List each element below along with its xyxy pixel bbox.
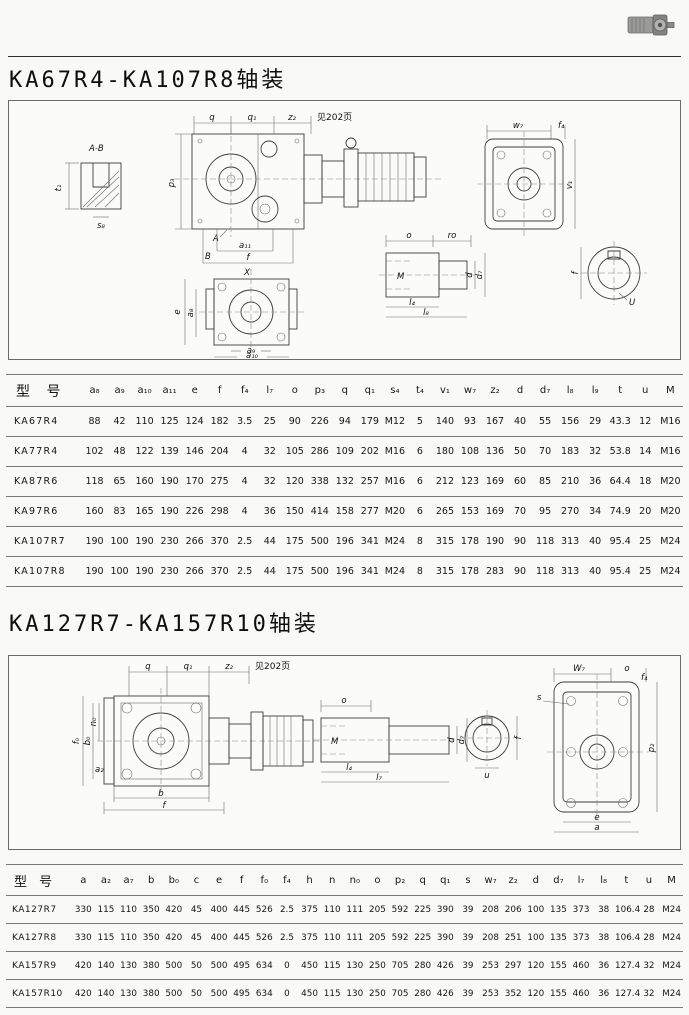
value-cell: 32	[257, 437, 282, 467]
table2: 型 号aa₂a₇bb₀ceff₀f₄hnn₀op₂qq₁sw₇z₂dd₇l₇l₈…	[6, 864, 683, 1008]
value-cell: 277	[357, 497, 382, 527]
value-cell: 178	[457, 557, 482, 587]
value-cell: 94	[332, 407, 357, 437]
dim-e-label: e	[173, 309, 183, 314]
section2-title: KA127R7-KA157R10轴装	[9, 606, 319, 638]
dim-p2-label: p₂	[647, 743, 657, 753]
value-cell: 130	[344, 952, 367, 980]
dim-o2-label: o	[624, 664, 629, 674]
value-cell: M20	[658, 467, 683, 497]
value-cell: 8	[407, 557, 432, 587]
value-cell: 500	[307, 527, 332, 557]
value-cell: 167	[483, 407, 508, 437]
value-cell: 36	[592, 952, 615, 980]
flange-view: W₇ o s f₄ p₂ e a	[537, 664, 657, 833]
column-header: l₇	[257, 375, 282, 407]
value-cell: 0	[276, 980, 299, 1008]
table-row: KA107R81901001902302663702.5441755001963…	[6, 557, 683, 587]
value-cell: 266	[182, 557, 207, 587]
value-cell: 212	[432, 467, 457, 497]
table-row: KA67R488421101251241823.5259022694179M12…	[6, 407, 683, 437]
front-view: X e a₈ a₉ a₁₀	[173, 268, 305, 359]
value-cell: 74.9	[608, 497, 633, 527]
value-cell: 380	[140, 952, 163, 980]
dim-t1-label: t₁	[54, 185, 64, 192]
value-cell: 230	[157, 527, 182, 557]
value-cell: 445	[230, 896, 253, 924]
dim-u-label: U	[629, 298, 636, 308]
value-cell: 6	[407, 437, 432, 467]
value-cell: 153	[457, 497, 482, 527]
column-header: f	[207, 375, 232, 407]
value-cell: 120	[282, 467, 307, 497]
value-cell: 196	[332, 527, 357, 557]
column-header: p₂	[389, 865, 412, 896]
value-cell: 130	[344, 980, 367, 1008]
value-cell: 100	[107, 557, 132, 587]
value-cell: 100	[525, 924, 548, 952]
value-cell: 120	[525, 952, 548, 980]
value-cell: 206	[502, 896, 525, 924]
value-cell: 375	[298, 924, 321, 952]
value-cell: 190	[157, 497, 182, 527]
value-cell: 110	[117, 896, 140, 924]
value-cell: 266	[182, 527, 207, 557]
dim-q-label: q	[209, 113, 215, 123]
column-header: d	[525, 865, 548, 896]
value-cell: 12	[633, 407, 658, 437]
value-cell: 42	[107, 407, 132, 437]
value-cell: 40	[583, 527, 608, 557]
value-cell: 226	[307, 407, 332, 437]
dim-f-circle-label: f	[571, 270, 581, 275]
value-cell: 400	[208, 924, 231, 952]
column-header: l₈	[592, 865, 615, 896]
value-cell: 460	[570, 980, 593, 1008]
dim-a-label: a	[594, 823, 599, 833]
value-cell: 4	[232, 467, 257, 497]
value-cell: 50	[185, 952, 208, 980]
column-header: b	[140, 865, 163, 896]
column-header: t₄	[407, 375, 432, 407]
value-cell: 230	[157, 557, 182, 587]
value-cell: 178	[457, 527, 482, 557]
dim-l4-label: l₄	[409, 298, 415, 308]
value-cell: 150	[282, 497, 307, 527]
model-cell: KA107R8	[6, 557, 82, 587]
value-cell: 139	[157, 437, 182, 467]
value-cell: 48	[107, 437, 132, 467]
value-cell: 286	[307, 437, 332, 467]
column-header: o	[282, 375, 307, 407]
section-view-ab: A-B t₁ s₈	[54, 144, 121, 231]
value-cell: 118	[82, 467, 107, 497]
model-cell: KA97R6	[6, 497, 82, 527]
value-cell: 250	[366, 952, 389, 980]
value-cell: M24	[382, 527, 407, 557]
value-cell: 705	[389, 980, 412, 1008]
value-cell: 450	[298, 952, 321, 980]
dim-l7-label: l₇	[376, 773, 382, 783]
dim-q1-label: q₁	[184, 662, 193, 672]
column-header: l₉	[583, 375, 608, 407]
dim-d-label: d	[465, 272, 475, 278]
value-cell: 253	[479, 952, 502, 980]
column-header: o	[366, 865, 389, 896]
value-cell: 111	[344, 896, 367, 924]
value-cell: 315	[432, 557, 457, 587]
value-cell: 83	[107, 497, 132, 527]
value-cell: 298	[207, 497, 232, 527]
value-cell: 380	[140, 980, 163, 1008]
dim-p3-label: p₃	[167, 178, 177, 188]
dimension-table-2: 型 号aa₂a₇bb₀ceff₀f₄hnn₀op₂qq₁sw₇z₂dd₇l₇l₈…	[6, 864, 683, 1008]
value-cell: 36	[592, 980, 615, 1008]
value-cell: 330	[72, 896, 95, 924]
table-header-row: 型 号aa₂a₇bb₀ceff₀f₄hnn₀op₂qq₁sw₇z₂dd₇l₇l₈…	[6, 865, 683, 896]
value-cell: 205	[366, 896, 389, 924]
dim-z2-label: z₂	[224, 662, 233, 672]
value-cell: 592	[389, 896, 412, 924]
value-cell: 634	[253, 980, 276, 1008]
value-cell: M16	[658, 437, 683, 467]
dim-o-label: o	[341, 696, 346, 706]
model-cell: KA157R10	[6, 980, 72, 1008]
value-cell: 297	[502, 952, 525, 980]
value-cell: 500	[208, 952, 231, 980]
dim-f4-label: f₄	[641, 673, 648, 683]
dim-a11-label: a₁₁	[239, 241, 251, 251]
value-cell: 155	[547, 980, 570, 1008]
value-cell: 526	[253, 896, 276, 924]
value-cell: 146	[182, 437, 207, 467]
column-header: a₂	[95, 865, 118, 896]
value-cell: 280	[411, 980, 434, 1008]
value-cell: 140	[95, 980, 118, 1008]
value-cell: 190	[82, 527, 107, 557]
dim-f-label: f	[163, 801, 168, 811]
table-row: KA77R410248122139146204432105286109202M1…	[6, 437, 683, 467]
value-cell: 0	[276, 952, 299, 980]
value-cell: 106.4	[615, 924, 638, 952]
column-header: q₁	[434, 865, 457, 896]
column-header: d₇	[533, 375, 558, 407]
value-cell: 100	[107, 527, 132, 557]
value-cell: 6	[407, 497, 432, 527]
value-cell: 158	[332, 497, 357, 527]
value-cell: M20	[382, 497, 407, 527]
column-header: p₃	[307, 375, 332, 407]
value-cell: 2.5	[276, 924, 299, 952]
dim-f-circle-label: f	[514, 735, 524, 740]
value-cell: 110	[321, 896, 344, 924]
dim-q1-label: q₁	[248, 113, 257, 123]
column-header: l₈	[558, 375, 583, 407]
value-cell: 450	[298, 980, 321, 1008]
column-header: w₇	[479, 865, 502, 896]
value-cell: 420	[163, 896, 186, 924]
value-cell: 2.5	[276, 896, 299, 924]
value-cell: 118	[533, 557, 558, 587]
column-header: n₀	[344, 865, 367, 896]
value-cell: 190	[82, 557, 107, 587]
value-cell: 350	[140, 924, 163, 952]
column-header: q₁	[357, 375, 382, 407]
value-cell: 28	[638, 896, 661, 924]
gearmotor-photo-icon	[625, 7, 677, 41]
value-cell: 373	[570, 924, 593, 952]
value-cell: 275	[207, 467, 232, 497]
value-cell: 338	[307, 467, 332, 497]
value-cell: 205	[366, 924, 389, 952]
value-cell: 95.4	[608, 527, 633, 557]
value-cell: 95.4	[608, 557, 633, 587]
model-cell: KA77R4	[6, 437, 82, 467]
model-cell: KA127R7	[6, 896, 72, 924]
value-cell: 140	[432, 407, 457, 437]
value-cell: 43.3	[608, 407, 633, 437]
value-cell: 25	[257, 407, 282, 437]
column-header: M	[660, 865, 683, 896]
value-cell: 50	[508, 437, 533, 467]
model-cell: KA87R6	[6, 467, 82, 497]
value-cell: 2.5	[232, 557, 257, 587]
value-cell: 226	[182, 497, 207, 527]
section1-title: KA67R4-KA107R8轴装	[9, 62, 286, 94]
value-cell: 352	[502, 980, 525, 1008]
column-header: d	[508, 375, 533, 407]
value-cell: 111	[344, 924, 367, 952]
value-cell: 110	[117, 924, 140, 952]
value-cell: 115	[95, 896, 118, 924]
value-cell: 196	[332, 557, 357, 587]
value-cell: 165	[132, 497, 157, 527]
axis-x-label: X	[243, 268, 250, 278]
value-cell: 44	[257, 557, 282, 587]
value-cell: 105	[282, 437, 307, 467]
value-cell: 283	[483, 557, 508, 587]
value-cell: 250	[366, 980, 389, 1008]
dim-q-label: q	[145, 662, 151, 672]
value-cell: 123	[457, 467, 482, 497]
column-header: t	[608, 375, 633, 407]
column-header: u	[633, 375, 658, 407]
column-header: q	[332, 375, 357, 407]
value-cell: 32	[638, 952, 661, 980]
value-cell: 4	[232, 497, 257, 527]
value-cell: 64.4	[608, 467, 633, 497]
value-cell: 420	[72, 952, 95, 980]
value-cell: 8	[407, 527, 432, 557]
dim-e-label: e	[594, 813, 599, 823]
value-cell: 40	[508, 407, 533, 437]
dim-w7-label: w₇	[513, 121, 524, 131]
value-cell: 156	[558, 407, 583, 437]
dim-u-label: u	[484, 771, 489, 781]
value-cell: 109	[332, 437, 357, 467]
value-cell: 45	[185, 896, 208, 924]
value-cell: 100	[525, 896, 548, 924]
value-cell: 32	[638, 980, 661, 1008]
value-cell: 313	[558, 527, 583, 557]
value-cell: 125	[157, 407, 182, 437]
value-cell: 390	[434, 896, 457, 924]
value-cell: 190	[157, 467, 182, 497]
value-cell: 25	[633, 557, 658, 587]
table-row: KA107R71901001902302663702.5441755001963…	[6, 527, 683, 557]
side-view: q q₁ z₂ 见202页 p₃ A B	[167, 112, 441, 263]
value-cell: 70	[508, 497, 533, 527]
value-cell: 136	[483, 437, 508, 467]
model-cell: KA127R8	[6, 924, 72, 952]
value-cell: 169	[483, 467, 508, 497]
column-header: M	[658, 375, 683, 407]
value-cell: M24	[660, 924, 683, 952]
value-cell: 70	[533, 437, 558, 467]
dim-l4-label: l₄	[346, 763, 352, 773]
value-cell: 526	[253, 924, 276, 952]
value-cell: 390	[434, 924, 457, 952]
value-cell: 500	[163, 980, 186, 1008]
value-cell: M24	[660, 896, 683, 924]
value-cell: 4	[232, 437, 257, 467]
dim-v1-label: v₁	[565, 181, 575, 189]
value-cell: 53.8	[608, 437, 633, 467]
dim-d-label: d	[447, 737, 457, 743]
column-header: s₄	[382, 375, 407, 407]
figure1-drawing: A-B t₁ s₈ q q₁ z₂ 见202页 p₃	[9, 101, 680, 359]
column-header: b₀	[163, 865, 186, 896]
value-cell: 65	[107, 467, 132, 497]
value-cell: 160	[82, 497, 107, 527]
value-cell: 39	[457, 980, 480, 1008]
value-cell: 280	[411, 952, 434, 980]
value-cell: 36	[583, 467, 608, 497]
value-cell: 28	[638, 924, 661, 952]
value-cell: 313	[558, 557, 583, 587]
value-cell: 426	[434, 980, 457, 1008]
dim-d7-label: d₇	[475, 270, 485, 279]
value-cell: M24	[660, 980, 683, 1008]
value-cell: M24	[660, 952, 683, 980]
value-cell: 3.5	[232, 407, 257, 437]
value-cell: 257	[357, 467, 382, 497]
value-cell: 110	[132, 407, 157, 437]
value-cell: M24	[382, 557, 407, 587]
figure2-panel: q q₁ z₂ 见202页 n₀ f₀ b₀ a₂ b	[8, 655, 681, 850]
value-cell: 705	[389, 952, 412, 980]
value-cell: 135	[547, 896, 570, 924]
value-cell: 130	[117, 952, 140, 980]
value-cell: 38	[592, 924, 615, 952]
dim-a10-label: a₁₀	[246, 351, 259, 359]
model-cell: KA157R9	[6, 952, 72, 980]
value-cell: 500	[208, 980, 231, 1008]
column-header: h	[298, 865, 321, 896]
value-cell: 20	[633, 497, 658, 527]
value-cell: 400	[208, 896, 231, 924]
point-b-label: B	[205, 252, 211, 262]
dim-o-label: o	[406, 231, 411, 241]
value-cell: 370	[207, 527, 232, 557]
value-cell: 190	[132, 527, 157, 557]
column-header: n	[321, 865, 344, 896]
dim-f0-label: f₀	[72, 737, 82, 744]
value-cell: 115	[321, 952, 344, 980]
value-cell: 208	[479, 924, 502, 952]
table1: 型 号a₈a₉a₁₀a₁₁eff₄l₇op₃qq₁s₄t₄v₁w₇z₂dd₇l₈…	[6, 374, 683, 587]
value-cell: 175	[282, 557, 307, 587]
side-view: q q₁ z₂ 见202页 n₀ f₀ b₀ a₂ b	[72, 661, 319, 814]
value-cell: 45	[185, 924, 208, 952]
column-header: w₇	[457, 375, 482, 407]
dim-s8-label: s₈	[97, 221, 105, 231]
value-cell: 495	[230, 952, 253, 980]
value-cell: 102	[82, 437, 107, 467]
column-header: z₂	[502, 865, 525, 896]
value-cell: 50	[185, 980, 208, 1008]
value-cell: 373	[570, 896, 593, 924]
value-cell: 182	[207, 407, 232, 437]
value-cell: 175	[282, 527, 307, 557]
figure2-drawing: q q₁ z₂ 见202页 n₀ f₀ b₀ a₂ b	[9, 656, 680, 849]
value-cell: 122	[132, 437, 157, 467]
column-header: f₄	[276, 865, 299, 896]
value-cell: 132	[332, 467, 357, 497]
model-column-header: 型 号	[6, 865, 72, 896]
value-cell: 18	[633, 467, 658, 497]
shaft-view: o M d d₇ l₄ l₇	[314, 696, 467, 783]
value-cell: 251	[502, 924, 525, 952]
value-cell: 265	[432, 497, 457, 527]
table-row: KA127R8330115110350420454004455262.53751…	[6, 924, 683, 952]
value-cell: 208	[479, 896, 502, 924]
value-cell: 32	[257, 467, 282, 497]
value-cell: 14	[633, 437, 658, 467]
value-cell: 55	[533, 407, 558, 437]
dim-a2-label: a₂	[95, 765, 104, 775]
column-header: l₇	[570, 865, 593, 896]
value-cell: 108	[457, 437, 482, 467]
table-row: KA87R611865160190170275432120338132257M1…	[6, 467, 683, 497]
value-cell: 330	[72, 924, 95, 952]
table-row: KA127R7330115110350420454004455262.53751…	[6, 896, 683, 924]
column-header: a₈	[82, 375, 107, 407]
value-cell: 495	[230, 980, 253, 1008]
value-cell: 88	[82, 407, 107, 437]
value-cell: 6	[407, 467, 432, 497]
column-header: q	[411, 865, 434, 896]
value-cell: 135	[547, 924, 570, 952]
value-cell: 426	[434, 952, 457, 980]
column-header: s	[457, 865, 480, 896]
value-cell: 60	[508, 467, 533, 497]
value-cell: 592	[389, 924, 412, 952]
value-cell: 420	[163, 924, 186, 952]
value-cell: 414	[307, 497, 332, 527]
dim-b0-label: b₀	[83, 736, 93, 745]
value-cell: 155	[547, 952, 570, 980]
dim-f4-label: f₄	[558, 121, 565, 131]
value-cell: M24	[658, 527, 683, 557]
model-cell: KA107R7	[6, 527, 82, 557]
value-cell: 225	[411, 896, 434, 924]
value-cell: 25	[633, 527, 658, 557]
value-cell: 39	[457, 952, 480, 980]
value-cell: 5	[407, 407, 432, 437]
value-cell: 460	[570, 952, 593, 980]
dim-a8-label: a₈	[186, 308, 196, 317]
